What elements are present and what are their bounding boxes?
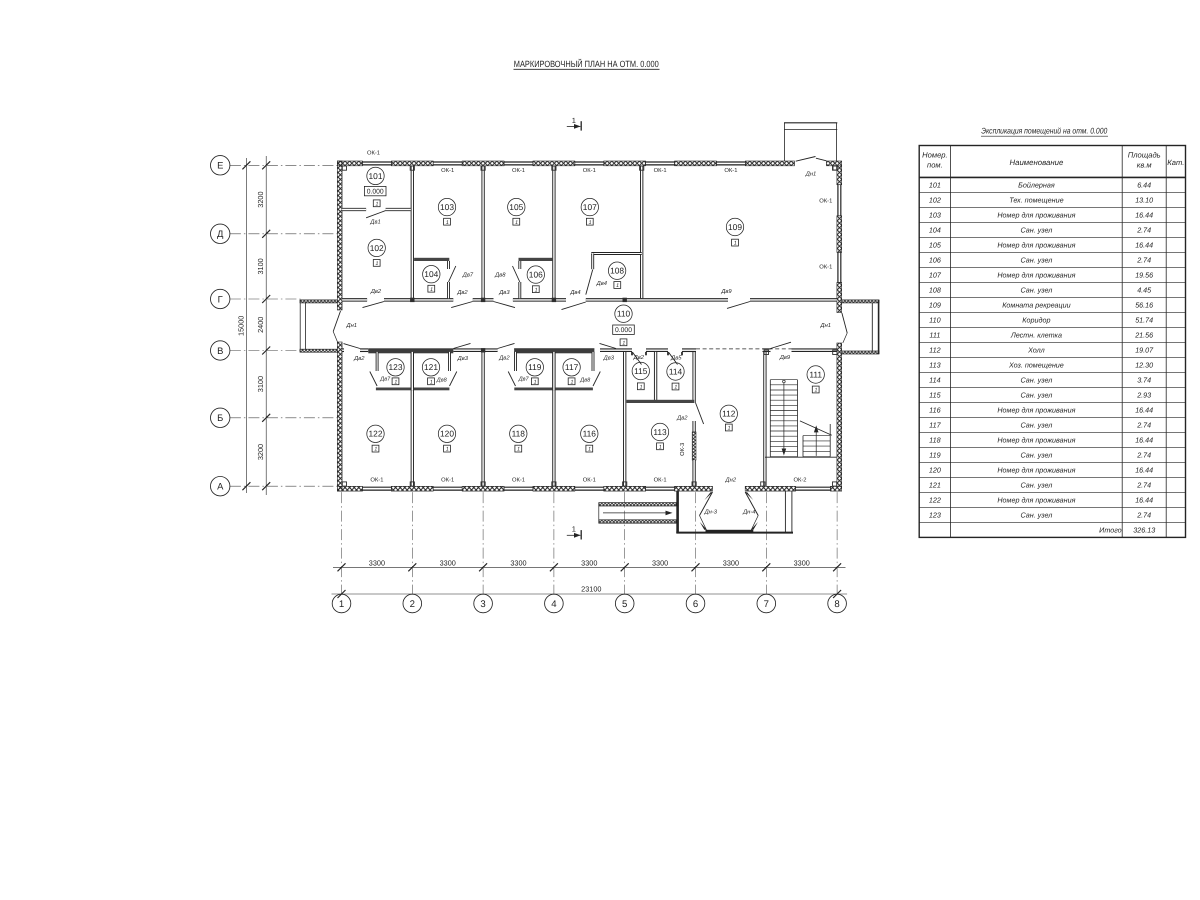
svg-text:103: 103: [929, 211, 941, 220]
svg-text:Сан. узел: Сан. узел: [1020, 421, 1052, 430]
svg-text:1: 1: [572, 525, 576, 534]
svg-text:19.07: 19.07: [1135, 346, 1154, 355]
svg-text:ОК-1: ОК-1: [724, 167, 737, 174]
svg-text:116: 116: [929, 406, 940, 415]
svg-text:Дв2: Дв2: [370, 288, 382, 295]
svg-text:Дв7: Дв7: [518, 377, 530, 383]
svg-text:21.56: 21.56: [1134, 331, 1153, 340]
svg-text:114: 114: [669, 366, 683, 376]
svg-text:1: 1: [572, 116, 576, 125]
svg-text:3300: 3300: [510, 558, 526, 567]
svg-text:106: 106: [929, 256, 941, 265]
svg-text:112: 112: [929, 346, 940, 355]
svg-text:113: 113: [929, 361, 940, 370]
svg-text:Г: Г: [218, 293, 223, 304]
svg-text:104: 104: [929, 226, 941, 235]
svg-text:2.93: 2.93: [1136, 391, 1151, 400]
svg-text:Сан. узел: Сан. узел: [1020, 451, 1052, 460]
svg-text:Коридор: Коридор: [1022, 316, 1050, 325]
svg-text:16.44: 16.44: [1135, 466, 1153, 475]
svg-text:1: 1: [534, 379, 537, 385]
svg-text:Номер для проживания: Номер для проживания: [997, 271, 1075, 280]
svg-text:Кат.: Кат.: [1167, 158, 1184, 167]
svg-text:6.44: 6.44: [1137, 181, 1151, 190]
svg-text:Номер для проживания: Номер для проживания: [997, 466, 1075, 475]
svg-text:Наименование: Наименование: [1009, 158, 1063, 167]
svg-text:120: 120: [929, 466, 941, 475]
svg-text:ОК-1: ОК-1: [512, 167, 525, 174]
svg-text:1: 1: [815, 388, 818, 394]
svg-text:Экспликация помещений на отм.: Экспликация помещений на отм. 0.000: [981, 127, 1107, 136]
svg-text:3100: 3100: [256, 376, 265, 392]
svg-text:104: 104: [424, 269, 438, 279]
svg-text:106: 106: [529, 270, 543, 280]
svg-text:121: 121: [424, 362, 438, 372]
svg-text:102: 102: [370, 243, 384, 253]
svg-text:ОК-1: ОК-1: [654, 477, 667, 484]
svg-text:6: 6: [693, 599, 698, 610]
svg-text:4: 4: [551, 599, 557, 610]
svg-text:Дв7: Дв7: [379, 377, 391, 383]
svg-text:1: 1: [728, 426, 731, 432]
svg-text:Дн1: Дн1: [820, 323, 832, 329]
svg-text:Дв7: Дв7: [462, 272, 474, 278]
svg-text:123: 123: [389, 362, 403, 372]
svg-text:3300: 3300: [581, 558, 597, 567]
svg-text:115: 115: [634, 366, 648, 376]
svg-text:1: 1: [570, 379, 573, 385]
svg-text:Дв1: Дв1: [369, 220, 380, 226]
svg-text:Лестн. клетка: Лестн. клетка: [1010, 331, 1062, 340]
svg-text:3300: 3300: [369, 558, 385, 567]
svg-text:16.44: 16.44: [1135, 436, 1153, 445]
svg-text:В: В: [217, 345, 223, 356]
svg-text:109: 109: [728, 222, 742, 232]
svg-text:ОК-1: ОК-1: [367, 150, 380, 157]
svg-text:Сан. узел: Сан. узел: [1020, 286, 1052, 295]
svg-text:111: 111: [929, 331, 940, 340]
svg-text:ОК-1: ОК-1: [583, 477, 596, 484]
svg-text:Итого: Итого: [1099, 526, 1122, 535]
svg-text:Б: Б: [217, 412, 223, 423]
svg-text:1: 1: [374, 447, 377, 453]
svg-text:105: 105: [929, 241, 942, 250]
svg-text:107: 107: [583, 202, 597, 212]
svg-text:19.56: 19.56: [1135, 271, 1153, 280]
svg-text:15000: 15000: [236, 316, 245, 336]
svg-text:ОК-1: ОК-1: [512, 477, 525, 484]
svg-text:Дн1: Дн1: [805, 172, 817, 178]
svg-text:Д: Д: [217, 228, 224, 239]
svg-text:Дв5: Дв5: [670, 355, 682, 361]
svg-text:122: 122: [929, 496, 941, 505]
svg-text:1: 1: [394, 379, 397, 385]
svg-text:1: 1: [446, 220, 449, 226]
svg-text:3300: 3300: [440, 558, 456, 567]
svg-text:1: 1: [430, 379, 433, 385]
svg-text:112: 112: [722, 409, 736, 419]
svg-text:16.44: 16.44: [1135, 241, 1153, 250]
svg-text:Номер для проживания: Номер для проживания: [997, 496, 1075, 505]
svg-text:3: 3: [480, 599, 485, 610]
svg-text:118: 118: [929, 436, 940, 445]
svg-text:1: 1: [339, 599, 344, 610]
svg-text:113: 113: [653, 427, 667, 437]
svg-text:123: 123: [929, 511, 941, 520]
svg-text:105: 105: [509, 202, 523, 212]
svg-text:7: 7: [764, 599, 769, 610]
svg-text:3200: 3200: [256, 191, 265, 207]
svg-text:1: 1: [517, 447, 520, 453]
svg-text:3100: 3100: [256, 258, 265, 274]
svg-text:1: 1: [376, 201, 379, 207]
svg-text:3300: 3300: [794, 558, 810, 567]
svg-text:Е: Е: [217, 160, 223, 171]
svg-text:121: 121: [929, 481, 941, 490]
svg-text:Тех. помещение: Тех. помещение: [1009, 196, 1063, 205]
svg-text:117: 117: [565, 362, 579, 372]
svg-text:119: 119: [929, 451, 940, 460]
svg-text:111: 111: [809, 369, 822, 379]
svg-text:3300: 3300: [652, 558, 668, 567]
svg-text:116: 116: [583, 429, 597, 439]
svg-text:13.10: 13.10: [1135, 196, 1153, 205]
svg-text:Сан. узел: Сан. узел: [1020, 511, 1052, 520]
svg-text:Дв3: Дв3: [498, 289, 510, 296]
svg-text:120: 120: [440, 429, 454, 439]
svg-text:3300: 3300: [723, 558, 739, 567]
svg-text:3.74: 3.74: [1137, 376, 1151, 385]
svg-text:Сан. узел: Сан. узел: [1020, 256, 1052, 265]
svg-text:1: 1: [446, 447, 449, 453]
svg-text:Комната рекреации: Комната рекреации: [1002, 301, 1070, 310]
svg-text:109: 109: [929, 301, 941, 310]
svg-text:103: 103: [440, 202, 454, 212]
svg-text:12.30: 12.30: [1135, 361, 1153, 370]
svg-text:ОК-3: ОК-3: [679, 443, 686, 456]
svg-text:1: 1: [589, 220, 592, 226]
svg-text:326.13: 326.13: [1133, 526, 1155, 535]
svg-text:114: 114: [929, 376, 940, 385]
svg-text:Сан. узел: Сан. узел: [1020, 391, 1052, 400]
svg-text:1: 1: [616, 283, 619, 289]
svg-text:5: 5: [622, 599, 627, 610]
svg-text:Дв2: Дв2: [633, 354, 645, 361]
svg-text:1: 1: [588, 447, 591, 453]
svg-text:102: 102: [929, 196, 941, 205]
svg-text:Дв2: Дв2: [456, 289, 468, 296]
svg-text:ОК-1: ОК-1: [441, 477, 454, 484]
svg-text:ОК-1: ОК-1: [583, 167, 596, 174]
svg-text:Дн1: Дн1: [346, 323, 358, 329]
svg-text:ОК-1: ОК-1: [654, 167, 667, 174]
svg-text:Дн-4: Дн-4: [742, 510, 755, 516]
svg-text:Дв4: Дв4: [596, 281, 607, 287]
svg-text:Дв8: Дв8: [436, 377, 448, 383]
svg-text:122: 122: [369, 429, 383, 439]
svg-text:23100: 23100: [581, 585, 601, 594]
svg-text:1: 1: [376, 261, 379, 267]
svg-text:101: 101: [929, 181, 941, 190]
svg-text:2.74: 2.74: [1136, 421, 1151, 430]
svg-text:ОК-1: ОК-1: [441, 167, 454, 174]
svg-text:56.16: 56.16: [1135, 301, 1153, 310]
svg-text:2.74: 2.74: [1136, 511, 1151, 520]
svg-text:ОК-1: ОК-1: [370, 477, 383, 484]
svg-text:119: 119: [528, 362, 542, 372]
svg-text:кв.м: кв.м: [1137, 161, 1153, 170]
svg-text:0.000: 0.000: [367, 189, 384, 196]
svg-text:Дв3: Дв3: [457, 355, 469, 362]
svg-text:1: 1: [659, 444, 662, 450]
svg-text:51.74: 51.74: [1135, 316, 1153, 325]
svg-text:2: 2: [410, 599, 415, 610]
svg-text:Номер.: Номер.: [922, 150, 947, 159]
svg-text:Хоз. помещение: Хоз. помещение: [1008, 361, 1064, 370]
svg-text:Номер для проживания: Номер для проживания: [997, 406, 1075, 415]
svg-text:2.74: 2.74: [1136, 481, 1151, 490]
svg-text:Сан. узел: Сан. узел: [1020, 376, 1052, 385]
svg-text:Номер для проживания: Номер для проживания: [997, 241, 1075, 250]
svg-text:1: 1: [640, 384, 643, 390]
svg-text:0.000: 0.000: [615, 327, 632, 334]
svg-text:ОК-1: ОК-1: [819, 197, 832, 204]
svg-text:1: 1: [674, 385, 677, 391]
svg-text:3200: 3200: [256, 444, 265, 460]
svg-text:107: 107: [929, 271, 942, 280]
svg-text:2.74: 2.74: [1136, 256, 1151, 265]
svg-text:Площадь: Площадь: [1128, 150, 1161, 159]
svg-text:1: 1: [535, 287, 538, 293]
svg-text:Дв2: Дв2: [498, 354, 510, 361]
svg-text:16.44: 16.44: [1135, 211, 1153, 220]
svg-text:Дн2: Дн2: [725, 477, 737, 484]
svg-text:117: 117: [929, 421, 941, 430]
svg-text:ОК-2: ОК-2: [793, 477, 806, 484]
svg-text:101: 101: [369, 171, 383, 181]
svg-text:Номер для проживания: Номер для проживания: [997, 436, 1075, 445]
svg-text:Дв4: Дв4: [569, 290, 580, 296]
svg-text:МАРКИРОВОЧНЫЙ ПЛАН НА ОТМ. 0.0: МАРКИРОВОЧНЫЙ ПЛАН НА ОТМ. 0.000: [514, 58, 659, 69]
svg-text:Сан. узел: Сан. узел: [1020, 481, 1052, 490]
svg-text:Дв2: Дв2: [353, 355, 365, 362]
svg-text:Дв2: Дв2: [676, 415, 688, 422]
svg-text:Дв8: Дв8: [579, 377, 591, 383]
svg-text:16.44: 16.44: [1135, 406, 1153, 415]
svg-text:Номер для проживания: Номер для проживания: [997, 211, 1075, 220]
svg-text:1: 1: [622, 340, 625, 346]
svg-text:118: 118: [512, 429, 526, 439]
svg-text:Дв9: Дв9: [720, 288, 732, 295]
svg-text:1: 1: [515, 220, 518, 226]
svg-text:Бойлерная: Бойлерная: [1018, 181, 1055, 190]
svg-text:8: 8: [834, 599, 839, 610]
svg-text:1: 1: [430, 287, 433, 293]
svg-text:4.45: 4.45: [1137, 286, 1152, 295]
svg-text:2.74: 2.74: [1136, 451, 1151, 460]
svg-text:108: 108: [610, 266, 624, 276]
svg-text:А: А: [217, 481, 224, 492]
svg-text:115: 115: [929, 391, 941, 400]
svg-text:16.44: 16.44: [1135, 496, 1153, 505]
svg-text:1: 1: [734, 241, 737, 247]
svg-text:ОК-1: ОК-1: [819, 264, 832, 271]
svg-text:110: 110: [929, 316, 940, 325]
svg-text:Дв3: Дв3: [603, 354, 615, 361]
svg-text:110: 110: [617, 309, 631, 319]
svg-text:2.74: 2.74: [1136, 226, 1151, 235]
svg-text:Дв9: Дв9: [779, 354, 791, 361]
svg-text:108: 108: [929, 286, 941, 295]
svg-text:Дв8: Дв8: [494, 271, 506, 278]
svg-text:2400: 2400: [256, 317, 265, 333]
svg-text:пом.: пом.: [927, 161, 943, 170]
svg-text:Холл: Холл: [1027, 346, 1045, 355]
svg-text:Сан. узел: Сан. узел: [1020, 226, 1052, 235]
svg-text:Дн-3: Дн-3: [704, 509, 718, 516]
